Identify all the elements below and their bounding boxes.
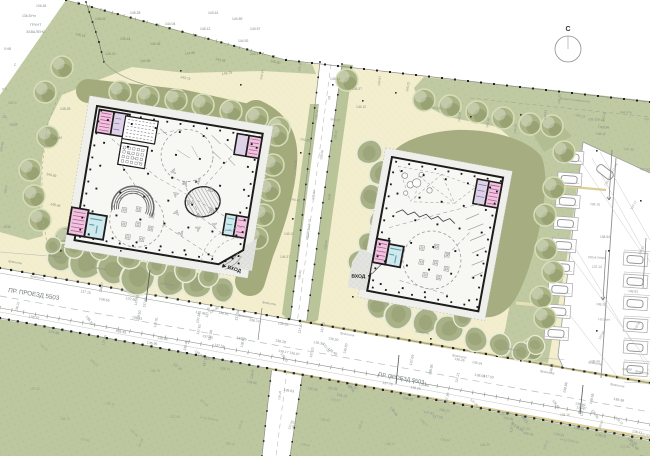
svg-text:136.8Утл: 136.8Утл [22,14,36,18]
svg-text:136.19: 136.19 [590,202,600,207]
svg-text:144.37: 144.37 [280,255,290,259]
svg-text:137.46: 137.46 [644,117,650,122]
svg-text:138.69: 138.69 [590,359,600,364]
svg-text:ГРУНТ: ГРУНТ [30,23,42,27]
svg-text:ГАЗОН: ГАЗОН [598,125,610,130]
svg-text:РАЗР: РАЗР [10,123,18,127]
svg-text:145.12: 145.12 [356,105,366,109]
svg-text:138.17: 138.17 [385,442,395,446]
svg-text:С: С [565,26,570,33]
svg-text:136.66: 136.66 [622,367,632,372]
svg-text:ВХОД ▼: ВХОД ▼ [351,274,372,281]
svg-text:144.17: 144.17 [250,52,260,56]
svg-text:145.25: 145.25 [60,107,70,111]
svg-text:144.92: 144.92 [238,39,248,43]
svg-text:л.9: л.9 [2,87,7,91]
svg-text:СВ..: СВ.. [2,115,8,119]
svg-text:УЛ: УЛ [327,96,332,101]
svg-text:145.44: 145.44 [120,37,130,41]
svg-text:138.12: 138.12 [596,132,606,136]
svg-text:138.84: 138.84 [600,235,610,239]
svg-text:144.04: 144.04 [165,22,175,26]
svg-text:143.57: 143.57 [250,27,260,31]
svg-text:137.63: 137.63 [640,167,650,172]
svg-text:145.32: 145.32 [105,52,115,56]
svg-text:138.79: 138.79 [150,369,160,373]
svg-text:145.28: 145.28 [130,11,140,15]
svg-text:145.10: 145.10 [284,232,294,236]
svg-text:138.83: 138.83 [628,289,638,294]
svg-text:об.50: об.50 [3,225,11,229]
svg-text:144.06: 144.06 [150,42,160,46]
svg-text:106.84: 106.84 [36,4,46,8]
svg-text:137.52: 137.52 [30,387,40,391]
svg-text:138.77: 138.77 [60,417,70,421]
svg-text:138.74: 138.74 [500,412,510,416]
svg-text:138.59: 138.59 [480,443,490,447]
svg-text:137.81: 137.81 [620,445,630,449]
svg-text:137.24: 137.24 [624,147,634,152]
svg-text:107.0: 107.0 [8,101,17,105]
svg-text:145.03: 145.03 [95,17,105,21]
svg-text:ЗАВАЛЕНО: ЗАВАЛЕНО [26,30,46,34]
svg-text:137.14: 137.14 [592,265,602,269]
svg-text:138.16: 138.16 [560,413,570,417]
svg-text:138.26: 138.26 [596,302,606,307]
svg-text:9.НВ: 9.НВ [4,47,11,51]
svg-text:144.89: 144.89 [232,17,242,21]
svg-text:137.85: 137.85 [520,427,530,431]
svg-text:144.95: 144.95 [140,59,150,63]
svg-text:145.24: 145.24 [330,77,340,81]
svg-text:145.12: 145.12 [200,27,210,31]
svg-text:145.37: 145.37 [352,87,362,91]
svg-text:137.40: 137.40 [170,415,180,419]
svg-text:143.61: 143.61 [208,11,218,15]
